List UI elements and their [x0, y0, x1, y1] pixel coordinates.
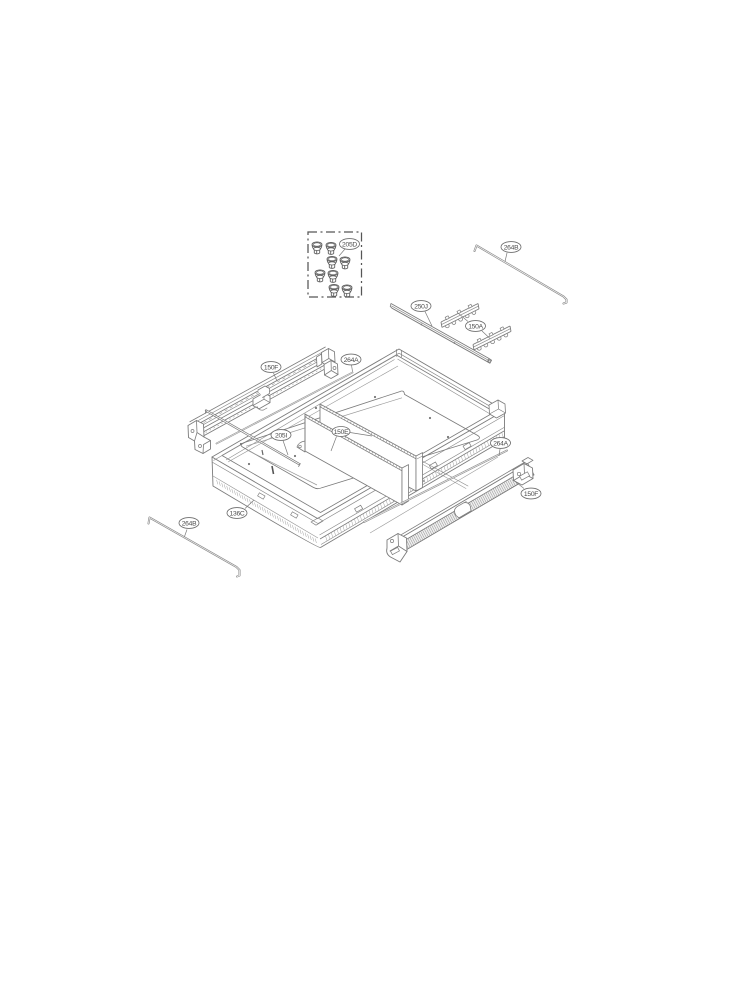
- svg-text:136C: 136C: [230, 511, 245, 518]
- svg-text:150F: 150F: [524, 491, 538, 498]
- svg-text:250J: 250J: [414, 304, 428, 311]
- svg-text:150A: 150A: [468, 324, 483, 331]
- svg-text:264B: 264B: [182, 521, 197, 528]
- svg-text:205D: 205D: [342, 242, 357, 249]
- svg-text:150E: 150E: [334, 429, 349, 436]
- svg-text:150F: 150F: [264, 365, 278, 372]
- svg-text:264B: 264B: [504, 245, 519, 252]
- svg-text:264A: 264A: [493, 441, 508, 448]
- svg-text:264A: 264A: [344, 357, 359, 364]
- svg-text:205I: 205I: [275, 433, 287, 440]
